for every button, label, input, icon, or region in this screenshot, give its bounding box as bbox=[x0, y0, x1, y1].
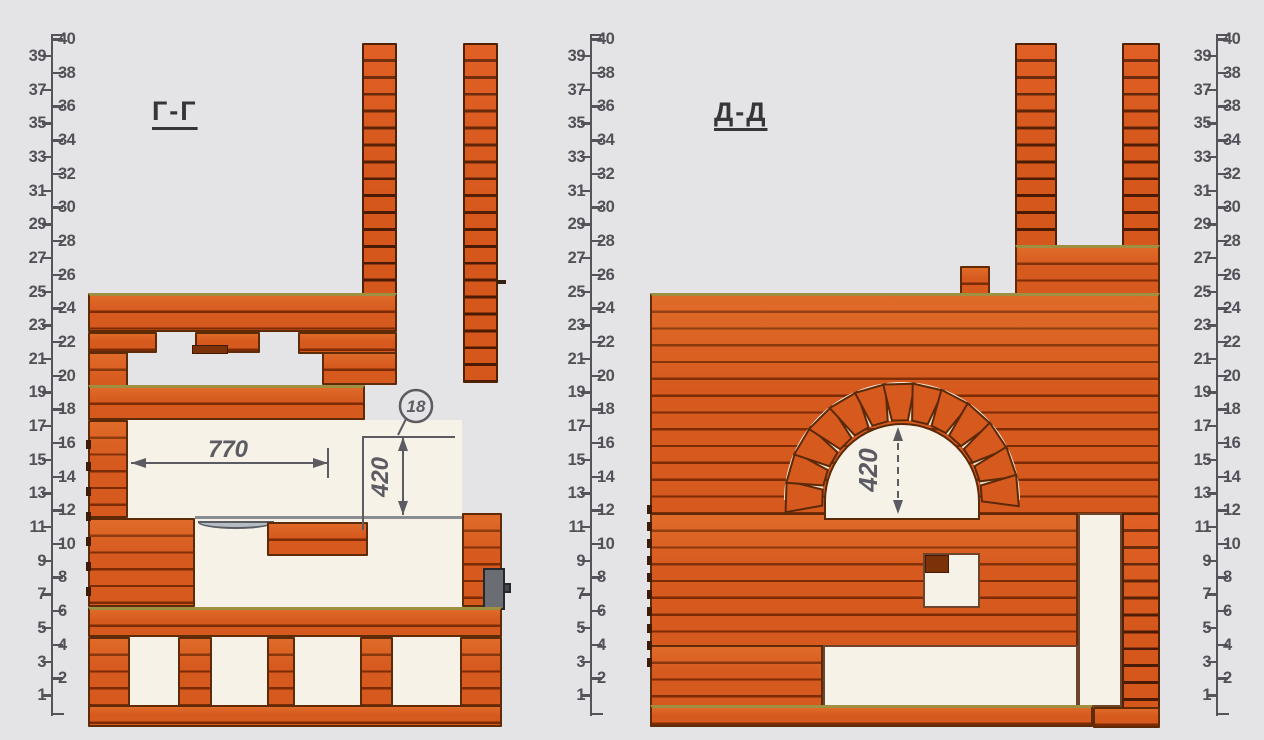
ruler-row-number: 40 bbox=[1223, 31, 1240, 47]
ruler-row-number: 7 bbox=[1202, 586, 1211, 602]
wall-tie-mark bbox=[647, 590, 652, 599]
dd-arch-overlay: 420 bbox=[770, 375, 1040, 527]
ruler-row-number: 14 bbox=[597, 469, 614, 485]
ruler-row-number: 10 bbox=[58, 536, 75, 552]
ruler-row-number: 14 bbox=[1223, 469, 1240, 485]
ruler-row-number: 38 bbox=[1223, 98, 1240, 114]
ruler-line bbox=[1217, 713, 1229, 715]
ruler-row-number: 5 bbox=[37, 620, 46, 636]
dd-base-band bbox=[650, 705, 1093, 727]
gg-pillar-4 bbox=[360, 637, 393, 707]
ruler-row-number: 26 bbox=[1223, 267, 1240, 283]
ruler-row-number: 12 bbox=[58, 502, 75, 518]
ruler-line bbox=[591, 713, 603, 715]
ruler-row-number: 26 bbox=[597, 267, 614, 283]
ruler-right: 1234567891011121314151617181920212223242… bbox=[1167, 30, 1264, 740]
wall-tie-mark bbox=[647, 539, 652, 548]
ruler-row-number: 20 bbox=[58, 368, 75, 384]
ruler-row-number: 30 bbox=[597, 199, 614, 215]
ruler-row-number: 15 bbox=[1194, 452, 1211, 468]
ruler-row-number: 30 bbox=[58, 199, 75, 215]
wall-tie-mark bbox=[86, 440, 91, 449]
ruler-row-number: 1 bbox=[1202, 687, 1211, 703]
ruler-row-number: 38 bbox=[597, 65, 614, 81]
gg-pillar-gap-2 bbox=[212, 637, 267, 707]
gg-pillar-2 bbox=[178, 637, 212, 707]
ruler-row-number: 34 bbox=[58, 132, 75, 148]
ruler-row-number: 9 bbox=[576, 553, 585, 569]
ruler-row-number: 12 bbox=[597, 502, 614, 518]
gg-chimney-left bbox=[362, 43, 397, 297]
gg-lower-band bbox=[88, 607, 502, 637]
ruler-row-number: 1 bbox=[576, 687, 585, 703]
ruler-row-number: 17 bbox=[1194, 418, 1211, 434]
ruler-row-number: 29 bbox=[568, 216, 585, 232]
ruler-row-number: 13 bbox=[29, 485, 46, 501]
dd-bottom-notch-cavity bbox=[823, 645, 1078, 707]
section-label-gg: Г-Г bbox=[152, 96, 198, 127]
dd-arch-height-dimension: 420 bbox=[853, 448, 883, 493]
ruler-row-number: 37 bbox=[29, 82, 46, 98]
dd-right-flue-channel bbox=[1078, 513, 1122, 707]
ruler-row-number: 21 bbox=[29, 351, 46, 367]
ruler-row-number: 4 bbox=[1223, 637, 1232, 653]
ruler-row-number: 7 bbox=[576, 586, 585, 602]
wall-tie-mark bbox=[86, 537, 91, 546]
ruler-row-number: 7 bbox=[37, 586, 46, 602]
ruler-row-number: 18 bbox=[58, 401, 75, 417]
gg-damper-knob bbox=[503, 583, 511, 593]
ruler-row-number: 33 bbox=[1194, 149, 1211, 165]
gg-width-dimension: 770 bbox=[208, 436, 249, 463]
ruler-row-number: 25 bbox=[1194, 284, 1211, 300]
wall-tie-mark bbox=[86, 512, 91, 521]
ruler-row-number: 12 bbox=[1223, 502, 1240, 518]
gg-pillar-gap-1 bbox=[130, 637, 178, 707]
ruler-row-number: 20 bbox=[1223, 368, 1240, 384]
gg-dimension-overlay: 770 420 18 bbox=[80, 380, 480, 550]
gg-pillar-5 bbox=[460, 637, 502, 707]
ruler-row-number: 30 bbox=[1223, 199, 1240, 215]
dd-body-lower-left bbox=[650, 645, 823, 707]
ruler-row-number: 22 bbox=[1223, 334, 1240, 350]
gg-top-band bbox=[88, 293, 397, 332]
dd-chimney-left bbox=[1015, 43, 1057, 248]
ruler-row-number: 29 bbox=[1194, 216, 1211, 232]
ruler-row-number: 37 bbox=[1194, 82, 1211, 98]
ruler-row-number: 31 bbox=[1194, 183, 1211, 199]
wall-tie-mark bbox=[647, 641, 652, 650]
ruler-row-number: 8 bbox=[1223, 569, 1232, 585]
ruler-row-number: 19 bbox=[1194, 384, 1211, 400]
wall-tie-mark bbox=[647, 556, 652, 565]
wall-tie-mark bbox=[647, 658, 652, 667]
ruler-row-number: 36 bbox=[597, 98, 614, 114]
ruler-row-number: 29 bbox=[29, 216, 46, 232]
ruler-row-number: 10 bbox=[1223, 536, 1240, 552]
ruler-row-number: 35 bbox=[29, 115, 46, 131]
ruler-row-number: 22 bbox=[597, 334, 614, 350]
ruler-row-number: 2 bbox=[597, 670, 606, 686]
ruler-row-number: 15 bbox=[29, 452, 46, 468]
ruler-row-number: 10 bbox=[597, 536, 614, 552]
wall-tie-mark bbox=[647, 607, 652, 616]
ruler-row-number: 25 bbox=[568, 284, 585, 300]
ruler-row-number: 2 bbox=[1223, 670, 1232, 686]
ruler-row-number: 3 bbox=[576, 654, 585, 670]
ruler-row-number: 13 bbox=[1194, 485, 1211, 501]
ruler-row-number: 32 bbox=[1223, 166, 1240, 182]
ruler-row-number: 11 bbox=[30, 519, 46, 535]
ruler-row-number: 39 bbox=[1194, 48, 1211, 64]
stove-diagram-canvas: Г-Г bbox=[0, 0, 1264, 740]
ruler-row-number: 16 bbox=[58, 435, 75, 451]
ruler-row-number: 21 bbox=[568, 351, 585, 367]
wall-tie-mark bbox=[647, 505, 652, 514]
ruler-row-number: 4 bbox=[58, 637, 67, 653]
ruler-row-number: 25 bbox=[29, 284, 46, 300]
ruler-row-number: 2 bbox=[58, 670, 67, 686]
ruler-row-number: 18 bbox=[1223, 401, 1240, 417]
gg-base-band bbox=[88, 705, 502, 727]
dd-body-lower bbox=[650, 513, 1078, 647]
wall-tie-mark bbox=[86, 562, 91, 571]
dd-column-base bbox=[1093, 707, 1160, 728]
ruler-row-number: 23 bbox=[29, 317, 46, 333]
ruler-row-number: 8 bbox=[597, 569, 606, 585]
ruler-row-number: 24 bbox=[597, 300, 614, 316]
ruler-row-number: 23 bbox=[1194, 317, 1211, 333]
ruler-row-number: 32 bbox=[58, 166, 75, 182]
ruler-middle: 1234567891011121314151617181920212223242… bbox=[541, 30, 641, 740]
dd-right-column bbox=[1122, 513, 1160, 709]
gg-row-callout: 18 bbox=[407, 397, 426, 416]
ruler-row-number: 37 bbox=[568, 82, 585, 98]
ruler-row-number: 6 bbox=[597, 603, 606, 619]
ruler-row-number: 33 bbox=[568, 149, 585, 165]
ruler-row-number: 17 bbox=[568, 418, 585, 434]
gg-height-dimension: 420 bbox=[367, 456, 394, 498]
ruler-row-number: 9 bbox=[37, 553, 46, 569]
ruler-row-number: 17 bbox=[29, 418, 46, 434]
ruler-row-number: 23 bbox=[568, 317, 585, 333]
dd-chimney-shoulder bbox=[1015, 245, 1160, 295]
ruler-row-number: 5 bbox=[1202, 620, 1211, 636]
ruler-row-number: 33 bbox=[29, 149, 46, 165]
ruler-row-number: 40 bbox=[597, 31, 614, 47]
ruler-row-number: 31 bbox=[29, 183, 46, 199]
ruler-row-number: 6 bbox=[1223, 603, 1232, 619]
ruler-row-number: 35 bbox=[568, 115, 585, 131]
dd-square-opening-brick-bit bbox=[925, 555, 949, 573]
ruler-row-number: 34 bbox=[597, 132, 614, 148]
ruler-row-number: 35 bbox=[1194, 115, 1211, 131]
gg-chimney-tick-mark bbox=[497, 280, 506, 284]
gg-pillar-gap-3 bbox=[295, 637, 360, 707]
ruler-row-number: 15 bbox=[568, 452, 585, 468]
ruler-row-number: 38 bbox=[1223, 65, 1240, 81]
ruler-row-number: 36 bbox=[58, 98, 75, 114]
ruler-row-number: 26 bbox=[58, 267, 75, 283]
gg-pillar-gap-4 bbox=[393, 637, 460, 707]
wall-tie-mark bbox=[86, 487, 91, 496]
gg-recess-dark-tab bbox=[192, 345, 228, 354]
ruler-row-number: 28 bbox=[58, 233, 75, 249]
ruler-row-number: 39 bbox=[29, 48, 46, 64]
ruler-row-number: 31 bbox=[568, 183, 585, 199]
wall-tie-mark bbox=[647, 624, 652, 633]
gg-chimney-right bbox=[463, 43, 498, 383]
ruler-row-number: 16 bbox=[1223, 435, 1240, 451]
ruler-row-number: 19 bbox=[29, 384, 46, 400]
ruler-row-number: 11 bbox=[1195, 519, 1211, 535]
ruler-row-number: 3 bbox=[1202, 654, 1211, 670]
wall-tie-mark bbox=[647, 573, 652, 582]
ruler-row-number: 22 bbox=[58, 334, 75, 350]
ruler-row-number: 32 bbox=[597, 166, 614, 182]
ruler-row-number: 27 bbox=[568, 250, 585, 266]
ruler-row-number: 16 bbox=[597, 435, 614, 451]
dd-chimney-right bbox=[1122, 43, 1160, 248]
ruler-row-number: 9 bbox=[1202, 553, 1211, 569]
ruler-row-number: 11 bbox=[569, 519, 585, 535]
ruler-row-number: 3 bbox=[37, 654, 46, 670]
dd-shoulder-step bbox=[960, 266, 990, 295]
ruler-row-number: 1 bbox=[37, 687, 46, 703]
ruler-row-number: 13 bbox=[568, 485, 585, 501]
ruler-row-number: 4 bbox=[597, 637, 606, 653]
ruler-row-number: 6 bbox=[58, 603, 67, 619]
gg-cleanout-damper bbox=[483, 568, 505, 610]
section-label-dd: Д-Д bbox=[714, 97, 767, 128]
ruler-row-number: 27 bbox=[1194, 250, 1211, 266]
ruler-row-number: 8 bbox=[58, 569, 67, 585]
ruler-row-number: 5 bbox=[576, 620, 585, 636]
ruler-row-number: 14 bbox=[58, 469, 75, 485]
ruler-row-number: 20 bbox=[597, 368, 614, 384]
ruler-row-number: 24 bbox=[58, 300, 75, 316]
ruler-row-number: 27 bbox=[29, 250, 46, 266]
ruler-row-number: 18 bbox=[597, 401, 614, 417]
ruler-row-number: 24 bbox=[1223, 300, 1240, 316]
ruler-row-number: 39 bbox=[568, 48, 585, 64]
ruler-row-number: 28 bbox=[1223, 233, 1240, 249]
ruler-row-number: 19 bbox=[568, 384, 585, 400]
wall-tie-mark bbox=[86, 587, 91, 596]
ruler-row-number: 28 bbox=[597, 233, 614, 249]
ruler-row-number: 40 bbox=[58, 31, 75, 47]
ruler-left: 1234567891011121314151617181920212223242… bbox=[2, 30, 102, 740]
wall-tie-mark bbox=[647, 522, 652, 531]
ruler-row-number: 34 bbox=[1223, 132, 1240, 148]
gg-pillar-3 bbox=[267, 637, 295, 707]
wall-tie-mark bbox=[86, 462, 91, 471]
ruler-row-number: 38 bbox=[58, 65, 75, 81]
ruler-row-number: 21 bbox=[1194, 351, 1211, 367]
gg-recess-right-upper bbox=[298, 332, 397, 354]
ruler-line bbox=[52, 713, 64, 715]
